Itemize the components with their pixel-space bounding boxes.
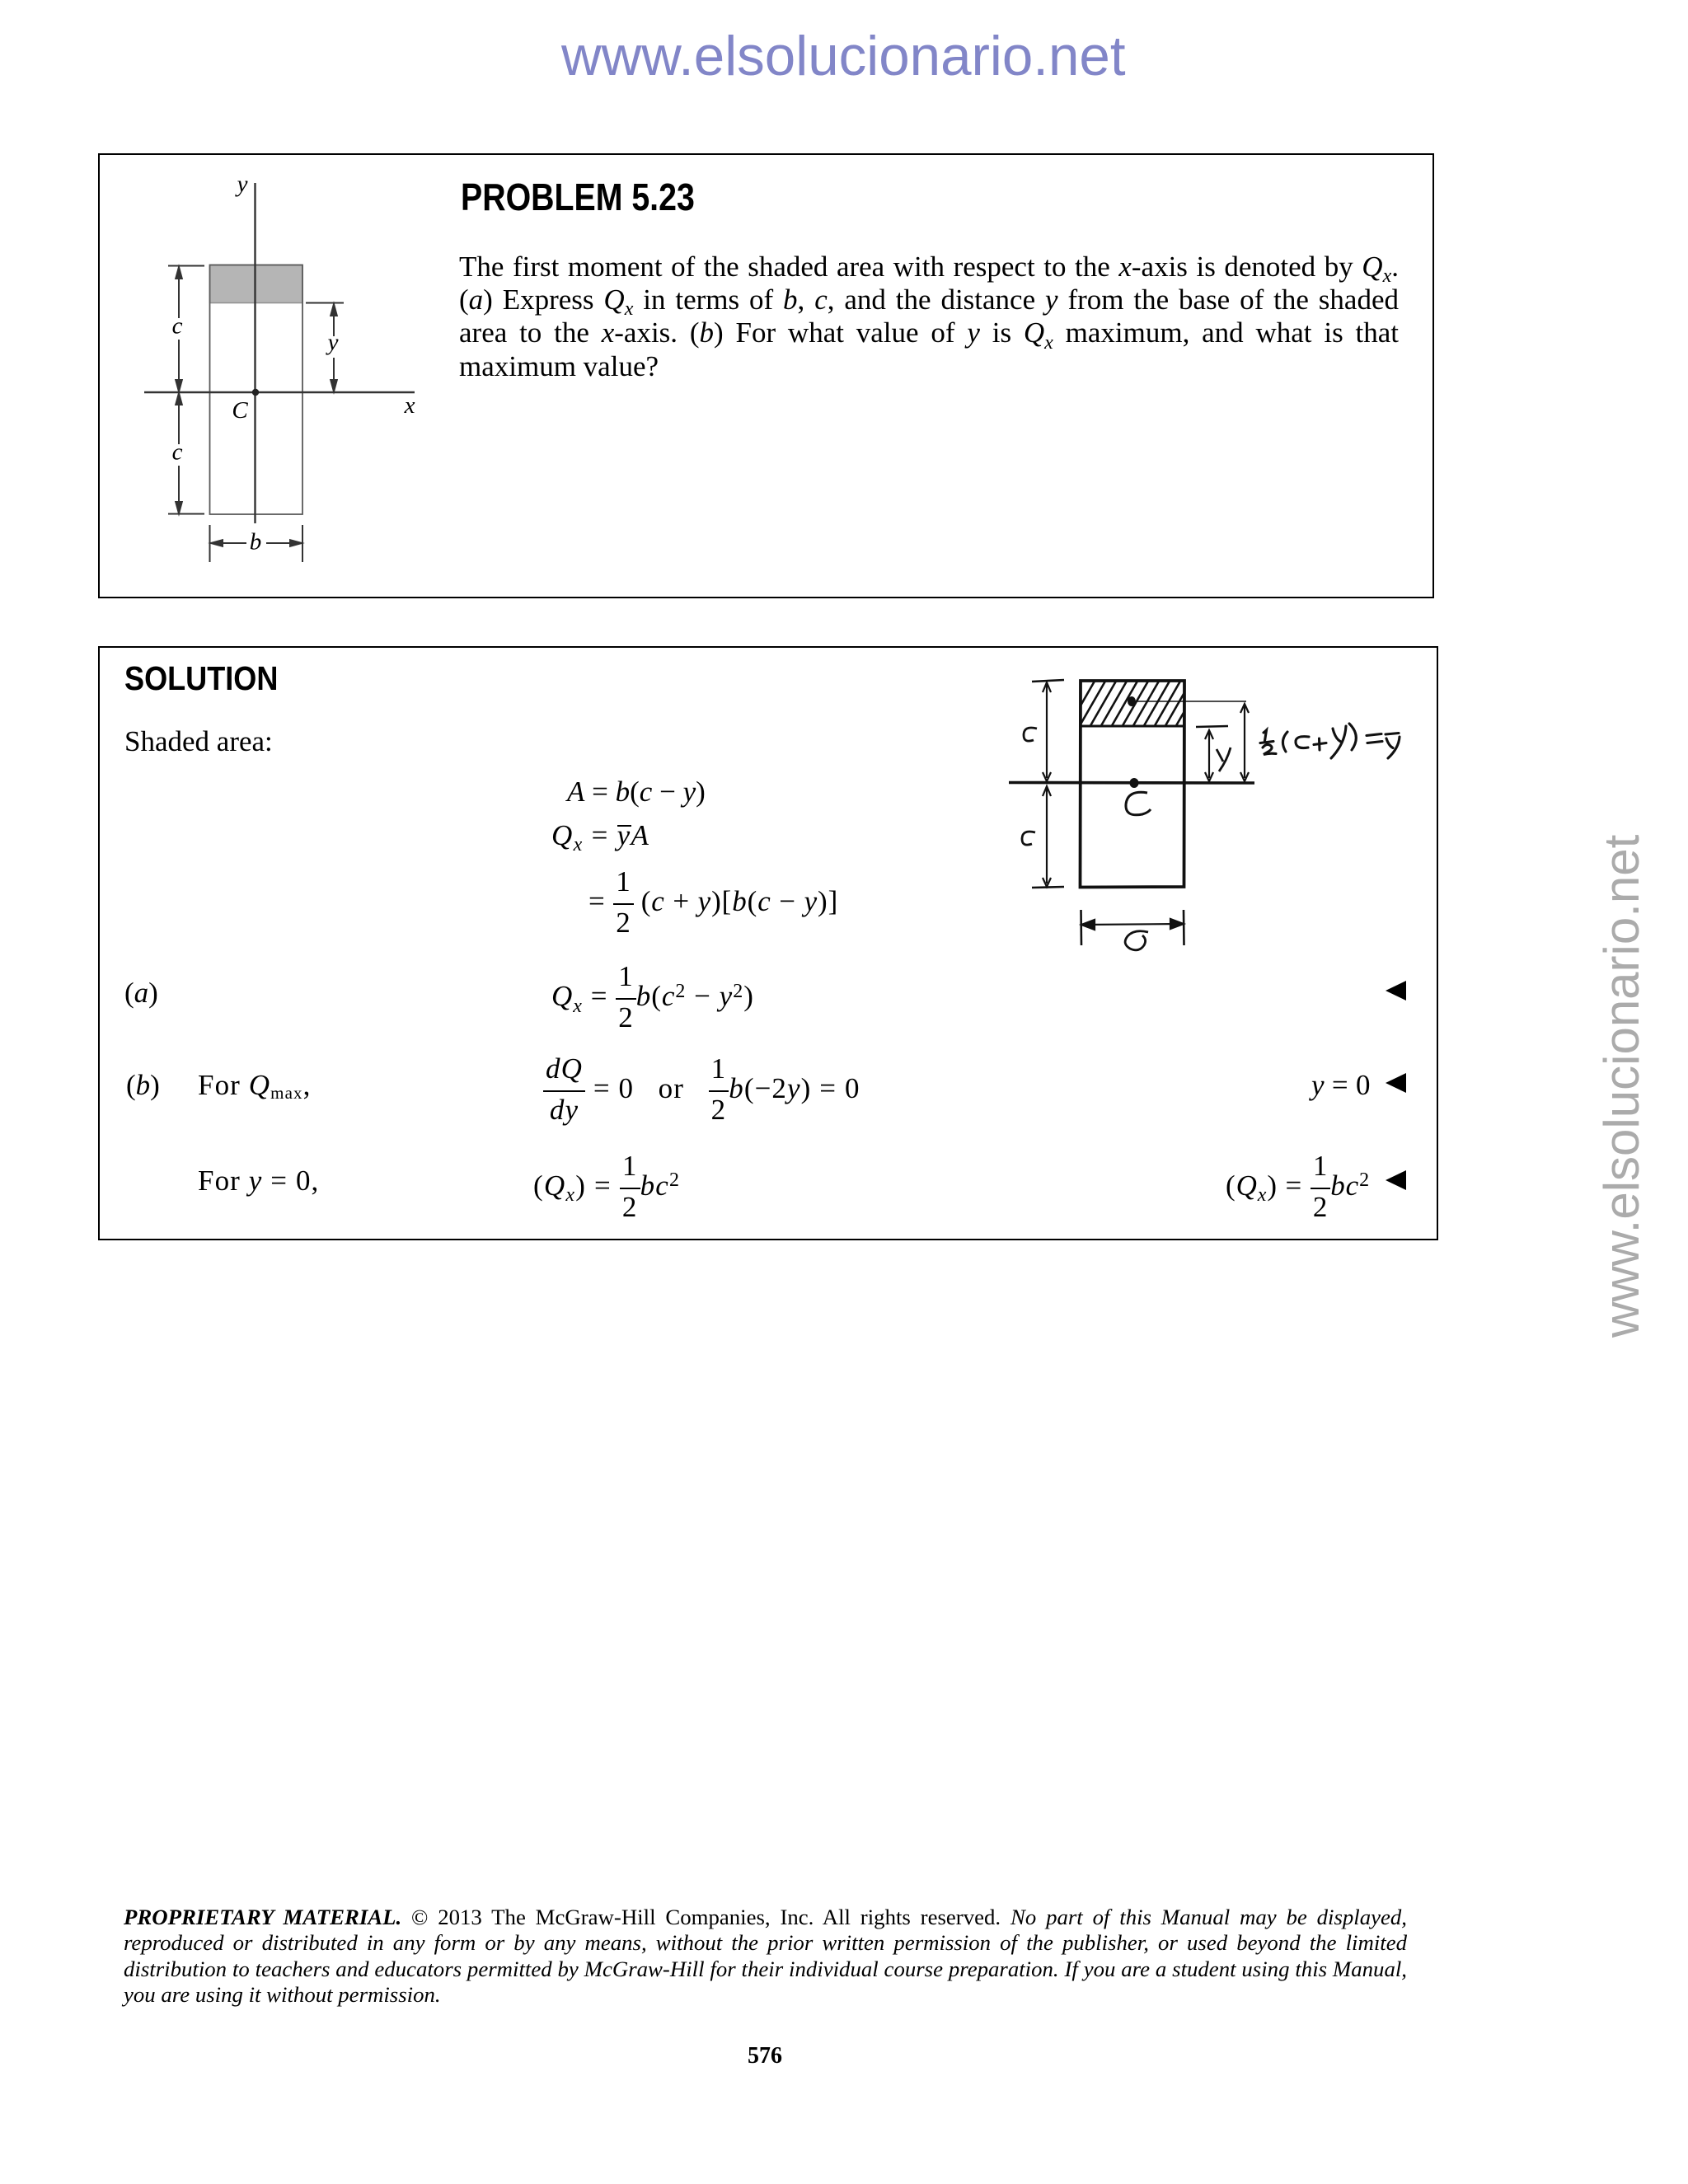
svg-text:x: x [404,392,415,419]
svg-text:c: c [172,313,183,340]
svg-text:c: c [172,439,183,466]
svg-text:C: C [232,397,248,424]
svg-text:b: b [250,529,262,555]
svg-text:y: y [326,330,339,356]
svg-text:y: y [235,171,248,198]
